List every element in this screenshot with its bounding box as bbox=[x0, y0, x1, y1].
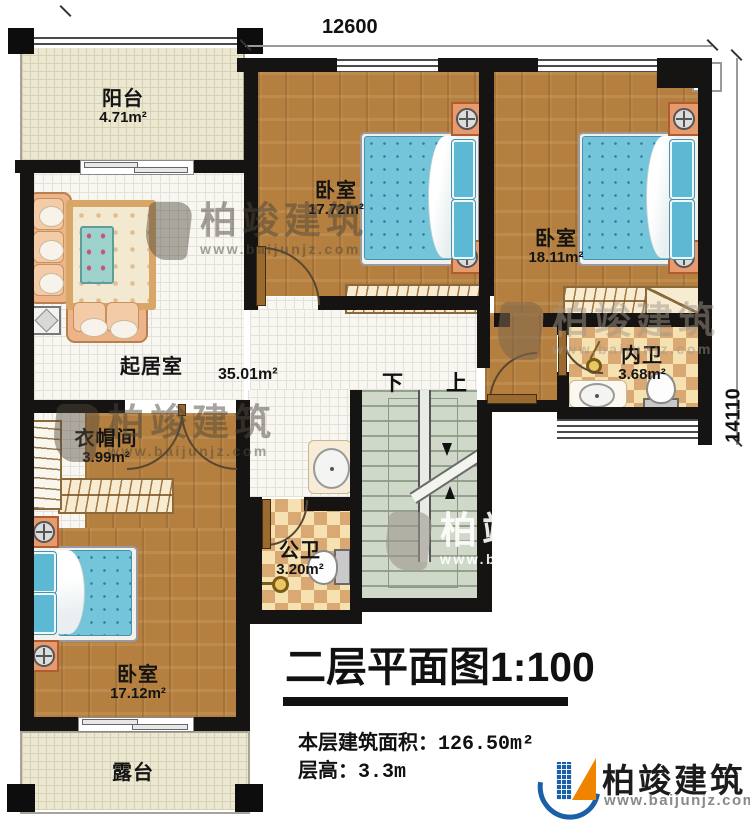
window-ensuite-sill bbox=[557, 419, 698, 443]
bedroom-right-name: 卧室 bbox=[535, 228, 577, 250]
balcony-area: 4.71m² bbox=[99, 110, 147, 127]
wall-hall-right bbox=[477, 296, 490, 368]
wall-house-bottom-r bbox=[192, 717, 250, 731]
public-bath-area: 3.20m² bbox=[276, 562, 324, 579]
dimension-tick bbox=[59, 5, 71, 17]
wall-left bbox=[20, 160, 34, 731]
floor-area-line: 本层建筑面积：126.50m² bbox=[298, 726, 534, 756]
bed-right-pillow bbox=[670, 200, 694, 259]
ensuite-door-arc bbox=[561, 332, 603, 374]
floor-height-value: 3.3m bbox=[358, 761, 406, 784]
bedroom-top-area: 17.72m² bbox=[308, 202, 364, 219]
bedroom-right-door-leaf bbox=[487, 394, 537, 404]
wall-stairs-bottom bbox=[350, 598, 492, 612]
wall-house-bottom-l bbox=[20, 717, 78, 731]
wall-balcony-bottom-r bbox=[192, 160, 245, 173]
public-bath-label: 公卫 3.20m² bbox=[260, 540, 340, 579]
nightstand bbox=[668, 102, 700, 136]
stairs-up-label: 上 bbox=[446, 367, 467, 397]
wall-publicbath-top bbox=[304, 497, 350, 511]
balcony-window bbox=[34, 37, 237, 48]
coffee-table bbox=[80, 226, 114, 284]
balcony-label: 阳台 4.71m² bbox=[84, 88, 162, 127]
wall-balcony-bottom-l bbox=[15, 160, 80, 173]
dimension-line-top bbox=[245, 45, 712, 47]
sofa-pillow bbox=[110, 320, 138, 339]
wall-bedroom2-bottom-stub bbox=[494, 313, 510, 327]
terrace-slider-panel-2 bbox=[132, 724, 188, 730]
lamp-icon bbox=[33, 521, 55, 543]
bed-bottom-pillow bbox=[32, 593, 56, 634]
title-underline bbox=[283, 697, 568, 706]
window-top-2 bbox=[538, 59, 657, 72]
wall-bedroom-bottom-right bbox=[236, 400, 250, 731]
column-top-left bbox=[8, 28, 34, 54]
bed-bottom-pillow bbox=[32, 552, 56, 593]
side-table bbox=[32, 306, 61, 335]
company-logo: 柏竣建筑 www.baijunjz.com bbox=[536, 746, 750, 821]
sofa-pillow bbox=[39, 273, 64, 294]
living-room-area: 35.01m² bbox=[218, 366, 278, 384]
wall-right bbox=[698, 72, 712, 445]
wall-stairs-right bbox=[477, 412, 492, 612]
bed-top-pillow bbox=[452, 200, 475, 259]
dimension-width: 12600 bbox=[322, 16, 378, 39]
balcony-name: 阳台 bbox=[102, 88, 144, 110]
wall-stairs-left bbox=[350, 390, 362, 612]
bed-top-pillow bbox=[452, 140, 475, 199]
cloakroom-label: 衣帽间 3.99m² bbox=[64, 428, 148, 467]
wall-bedroom1-bottom bbox=[318, 296, 479, 310]
floor-height-line: 层高：3.3m bbox=[298, 754, 406, 784]
bedroom-top-door-leaf bbox=[256, 246, 266, 306]
stairs-arrow-up-icon bbox=[445, 486, 455, 499]
bedroom-top-label: 卧室 17.72m² bbox=[296, 180, 376, 219]
wardrobe-cloakroom bbox=[58, 478, 174, 514]
bed-right-pillow bbox=[670, 140, 694, 199]
bedroom-right-area: 18.11m² bbox=[528, 250, 583, 267]
column-bottom-mid bbox=[235, 784, 263, 812]
ensuite-door-leaf bbox=[558, 330, 567, 376]
logo-tower-icon bbox=[556, 762, 572, 800]
sofa-pillow bbox=[39, 206, 64, 227]
cloakroom-area: 3.99m² bbox=[82, 450, 130, 467]
balcony-slider-panel-2 bbox=[134, 167, 188, 173]
window-top-1 bbox=[337, 59, 438, 72]
lamp-icon bbox=[33, 645, 55, 667]
sofa-pillow bbox=[39, 240, 64, 261]
bedroom-bottom-name: 卧室 bbox=[117, 664, 159, 686]
dimension-height: 14110 bbox=[723, 372, 746, 460]
hallway-floor bbox=[250, 310, 477, 390]
cloakroom-name: 衣帽间 bbox=[75, 428, 138, 450]
lamp-icon bbox=[673, 108, 695, 130]
terrace-slider-panel-1 bbox=[82, 719, 138, 725]
floor-area-value: 126.50m² bbox=[438, 733, 534, 756]
public-bath-name: 公卫 bbox=[279, 540, 321, 562]
column-bottom-left bbox=[7, 784, 35, 812]
bedroom-right-label: 卧室 18.11m² bbox=[516, 228, 596, 267]
ensuite-sink bbox=[579, 383, 615, 408]
floor-area-label: 本层建筑面积： bbox=[298, 732, 438, 754]
wall-publicbath-bottom bbox=[250, 610, 362, 624]
plan-title: 二层平面图1:100 bbox=[285, 633, 595, 693]
stairs-down-label: 下 bbox=[382, 367, 403, 397]
wall-top-a bbox=[237, 58, 337, 72]
wall-ensuite-bottom bbox=[557, 407, 698, 419]
balcony-slider-panel-1 bbox=[84, 162, 138, 168]
living-room-name: 起居室 bbox=[120, 356, 183, 378]
bedroom-bottom-area: 17.12m² bbox=[110, 686, 166, 703]
ensuite-bath-area: 3.68m² bbox=[618, 367, 666, 384]
lamp-icon bbox=[456, 108, 478, 130]
stairs-center-rail bbox=[418, 390, 431, 562]
floor-height-label: 层高： bbox=[298, 760, 358, 782]
bedroom-top-name: 卧室 bbox=[315, 180, 357, 202]
ensuite-bath-name: 内卫 bbox=[621, 345, 663, 367]
sofa-pillow bbox=[80, 318, 108, 337]
cloakroom-door-leaf bbox=[178, 404, 186, 416]
logo-url-text: www.baijunjz.com bbox=[604, 792, 750, 809]
wall-top-b bbox=[438, 58, 538, 72]
shelf-bedroom-right bbox=[645, 286, 702, 316]
bedroom-bottom-label: 卧室 17.12m² bbox=[98, 664, 178, 703]
hall-sink bbox=[313, 448, 350, 489]
wall-bedroom-divider bbox=[479, 72, 494, 296]
terrace-name: 露台 bbox=[112, 762, 154, 784]
ensuite-bath-label: 内卫 3.68m² bbox=[602, 345, 682, 384]
stairs-arrow-down-icon bbox=[442, 443, 452, 456]
wall-cloakroom-top bbox=[28, 400, 125, 413]
floor-plan: 下 上 bbox=[0, 0, 750, 827]
wardrobe-bedroom-right bbox=[563, 286, 649, 316]
